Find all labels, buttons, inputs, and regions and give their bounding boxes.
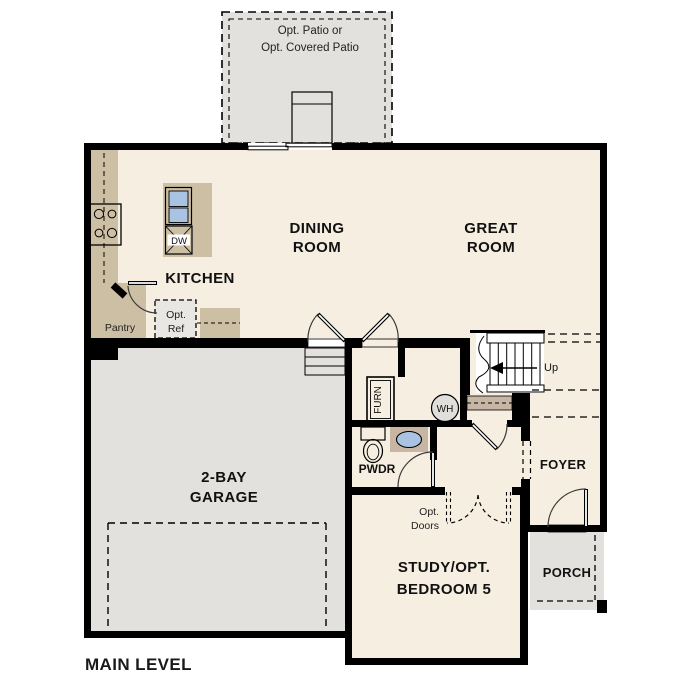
porch-area: PORCH <box>530 532 604 610</box>
opt-doors-label-line2: Doors <box>411 520 439 532</box>
wall-study-right <box>520 487 528 665</box>
garage-label-line2: GARAGE <box>190 489 258 506</box>
opt-ref-label-line1: Opt. <box>166 309 186 321</box>
under-stair-shelf <box>467 396 512 410</box>
wall-foyer-stub-top <box>521 420 530 441</box>
dining-room-label-line1: DINING <box>290 220 345 237</box>
wall-garage-corner-block <box>91 348 118 360</box>
wall-foyer-bottom <box>528 525 607 532</box>
study-label-line1: STUDY/OPT. <box>398 559 490 576</box>
pantry-label: Pantry <box>105 322 136 334</box>
wall-stair-left <box>460 338 470 395</box>
dining-room-label-line2: ROOM <box>293 239 341 256</box>
stairs-up-label: Up <box>544 362 558 374</box>
pwdr-label: PWDR <box>359 462 396 476</box>
wall-hall-top <box>398 338 470 348</box>
wall-study-top <box>345 487 445 495</box>
water-heater-label: WH <box>437 404 454 415</box>
optional-refrigerator: Opt. Ref <box>155 300 196 338</box>
great-room-label-line2: ROOM <box>467 239 515 256</box>
wall-porch-stub <box>597 600 607 613</box>
floor-plan-page: Opt. Patio or Opt. Covered Patio 2-BAY G… <box>0 0 687 687</box>
water-heater: WH <box>432 395 459 422</box>
opt-ref-label-line2: Ref <box>168 323 184 335</box>
sliding-patio-door <box>248 143 332 150</box>
wall-left <box>84 143 91 638</box>
plan-title: MAIN LEVEL <box>85 655 192 674</box>
threshold-garage-door <box>308 339 345 347</box>
porch-label: PORCH <box>543 565 591 580</box>
patio-area: Opt. Patio or Opt. Covered Patio <box>222 12 392 143</box>
garage-label-line1: 2-BAY <box>201 469 247 486</box>
study-label-line2: BEDROOM 5 <box>397 581 491 598</box>
vanity-sink <box>390 427 428 452</box>
great-room-label-line1: GREAT <box>464 220 517 237</box>
wall-garage-study <box>345 338 352 665</box>
patio-label-line1: Opt. Patio or <box>278 25 343 37</box>
island-sink <box>166 188 192 225</box>
patio-label-line2: Opt. Covered Patio <box>261 42 359 54</box>
opt-doors-label-line1: Opt. <box>419 506 439 518</box>
kitchen-label: KITCHEN <box>165 270 234 287</box>
wall-furn-nook <box>398 348 405 377</box>
floor-plan-drawing: Opt. Patio or Opt. Covered Patio 2-BAY G… <box>0 0 687 687</box>
wall-kitchen-garage <box>84 338 308 348</box>
kitchen-island: DW <box>163 183 212 257</box>
dishwasher-label: DW <box>171 236 187 247</box>
furnace-label: FURN <box>373 386 384 414</box>
foyer-label: FOYER <box>540 457 587 472</box>
garage-area: 2-BAY GARAGE <box>91 348 345 631</box>
